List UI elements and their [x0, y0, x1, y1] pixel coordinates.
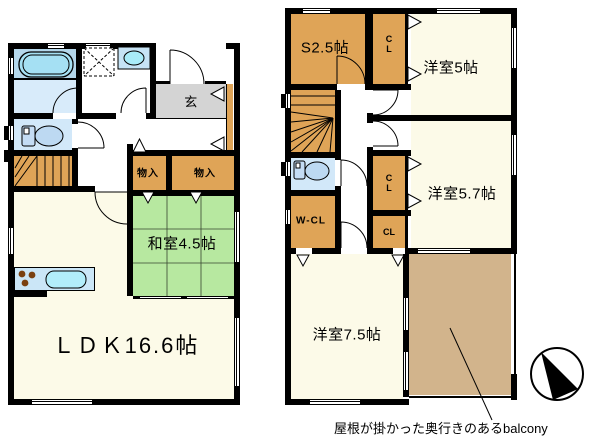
wall: [335, 186, 341, 254]
wall: [285, 152, 341, 158]
window: [285, 210, 291, 224]
stairs-2f: [291, 90, 335, 152]
wall: [470, 248, 517, 254]
wall: [72, 148, 78, 190]
wall: [8, 43, 156, 49]
window: [303, 8, 330, 14]
window: [285, 94, 291, 108]
wall: [146, 113, 156, 119]
compass-north-icon: [531, 348, 583, 400]
window: [437, 8, 480, 14]
wall: [72, 119, 78, 124]
wall: [365, 84, 411, 90]
window: [234, 318, 240, 386]
label-storage-a: 物入: [137, 165, 159, 180]
sliding-door-balcony: [403, 298, 409, 330]
wall: [405, 150, 408, 254]
wall: [127, 150, 234, 156]
wall-nub: [4, 126, 8, 140]
wall: [373, 115, 517, 121]
window: [8, 228, 14, 254]
wall: [76, 43, 82, 119]
room-toilet-1f: [14, 119, 72, 150]
room-toilet-2f: [291, 158, 335, 190]
wall: [403, 390, 409, 397]
wall: [405, 14, 408, 84]
wall: [403, 330, 409, 352]
wall: [367, 248, 393, 254]
wall: [335, 152, 341, 160]
wall-nub: [4, 150, 8, 162]
wall: [312, 248, 341, 254]
label-closet-low: CL: [383, 227, 395, 237]
balcony-rail-bottom: [409, 396, 515, 398]
label-closet-top: CL: [384, 35, 395, 55]
room-washroom: [14, 80, 76, 113]
wall: [14, 186, 95, 192]
wall: [285, 190, 341, 196]
room-bath: [14, 49, 76, 78]
floor-plan: 玄 物入 物入 和室4.5帖 ＬＤＫ16.6帖 S2.5帖 CL 洋室5帖 CL…: [0, 0, 600, 445]
wall: [367, 147, 373, 248]
balcony-annotation: 屋根が掛かった奥行きのあるbalcony: [334, 418, 548, 437]
window: [48, 43, 64, 49]
window: [285, 162, 291, 176]
wall: [365, 8, 373, 84]
washer-space-icon: [84, 48, 114, 76]
window: [511, 135, 517, 175]
kitchen-counter: [14, 267, 95, 291]
wall: [166, 156, 172, 190]
wall: [14, 78, 76, 80]
window: [32, 399, 92, 405]
wall: [335, 90, 341, 152]
wall: [285, 8, 291, 405]
label-service-room: S2.5帖: [301, 37, 349, 58]
wall: [205, 81, 226, 84]
stairs-1f: [14, 156, 72, 186]
wall: [14, 113, 53, 119]
label-wcl: W-CL: [296, 216, 326, 227]
sliding-door-balcony: [403, 352, 409, 390]
wall-nub: [281, 162, 285, 176]
wall: [14, 150, 72, 156]
window-to-balcony: [418, 248, 470, 254]
wall: [156, 81, 170, 84]
wall: [80, 113, 116, 119]
window: [86, 43, 110, 49]
washbasin-icon: [118, 47, 150, 69]
balcony-rail-right: [514, 254, 516, 376]
label-bedroom57: 洋室5.7帖: [428, 183, 497, 204]
wall: [403, 254, 409, 298]
wall: [285, 248, 296, 254]
entrance-step-line: [156, 118, 226, 119]
window: [234, 212, 240, 262]
wall: [127, 190, 234, 196]
entrance-porch-strip: [226, 84, 233, 152]
wall: [8, 43, 14, 405]
label-storage-b: 物入: [194, 165, 216, 180]
label-entrance: 玄: [184, 92, 198, 111]
window: [511, 28, 517, 68]
label-tatami: 和室4.5帖: [148, 233, 217, 254]
window: [8, 58, 14, 74]
wall-nub: [281, 94, 285, 108]
label-bedroom5: 洋室5帖: [423, 57, 478, 78]
wall: [511, 374, 517, 400]
window: [8, 126, 14, 140]
wall: [285, 84, 337, 90]
wall: [133, 296, 234, 299]
label-ldk: ＬＤＫ16.6帖: [53, 328, 200, 360]
window: [310, 399, 360, 405]
balcony: [409, 254, 511, 395]
wall: [127, 144, 133, 296]
label-closet-mid: CL: [384, 174, 395, 194]
kitchen-counter-end: [14, 291, 47, 297]
label-bedroom75: 洋室7.5帖: [313, 324, 382, 345]
